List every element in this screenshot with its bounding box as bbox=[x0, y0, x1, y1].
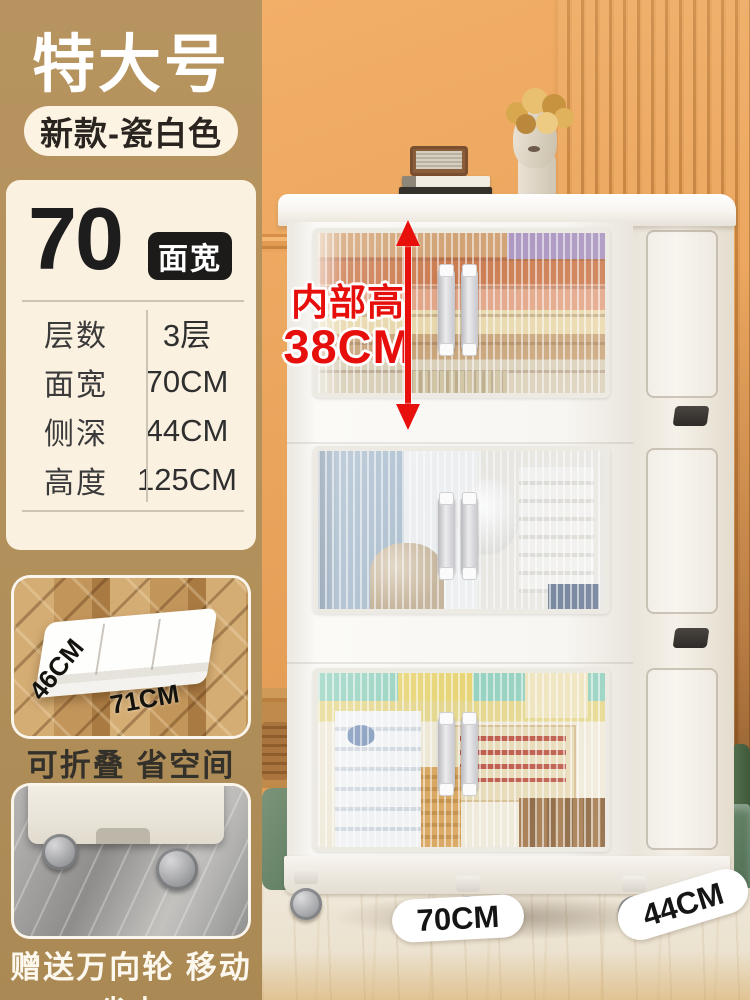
spec-panel: 70 面宽 层数 3层 面宽 70CM 侧深 44CM 高度 125C bbox=[6, 180, 256, 550]
info-sidebar: 特大号 新款-瓷白色 70 面宽 层数 3层 面宽 70CM 侧深 44CM bbox=[0, 0, 262, 1000]
spec-label: 侧深 bbox=[22, 409, 130, 453]
size-badge: 特大号 bbox=[0, 14, 262, 105]
wicker-basket bbox=[262, 722, 288, 780]
inner-height-annotation: 内部高 38CM bbox=[282, 284, 414, 370]
spec-table: 层数 3层 面宽 70CM 侧深 44CM 高度 125CM bbox=[22, 300, 244, 512]
face-vase-lips bbox=[528, 146, 540, 152]
folded-product-photo: 46CM 71CM bbox=[14, 578, 248, 736]
wheels-caption: 赠送万向轮 移动省力 bbox=[0, 942, 262, 1000]
spec-row: 面宽 70CM bbox=[22, 357, 244, 406]
table-divider bbox=[146, 310, 148, 502]
caster-wheel bbox=[288, 868, 324, 920]
inner-height-value: 38CM bbox=[282, 323, 414, 370]
folded-caption: 可折叠 省空间 bbox=[0, 740, 262, 785]
spec-row: 层数 3层 bbox=[22, 308, 244, 357]
floor-glow bbox=[262, 952, 750, 1000]
tier1-door-handles bbox=[438, 266, 478, 354]
cabinet-side-panel bbox=[630, 208, 734, 892]
spec-label: 面宽 bbox=[22, 360, 130, 404]
book-decor bbox=[402, 176, 490, 187]
caster-wheel-photo bbox=[156, 848, 198, 890]
height-arrow bbox=[405, 242, 411, 408]
wheels-detail-photo bbox=[14, 786, 248, 936]
width-big-number: 70 bbox=[28, 188, 122, 290]
variant-pill: 新款-瓷白色 bbox=[24, 106, 238, 156]
spec-label: 层数 bbox=[22, 311, 130, 355]
width-badge: 面宽 bbox=[148, 232, 232, 280]
product-poster: 内部高 38CM 70CM 44CM 特大号 新款-瓷白色 70 面宽 层数 3… bbox=[0, 0, 750, 1000]
side-handle-slot bbox=[673, 628, 710, 648]
inner-height-label: 内部高 bbox=[282, 284, 414, 321]
tier2-door-handles bbox=[438, 494, 478, 578]
spec-label: 高度 bbox=[22, 458, 130, 502]
height-arrow-top-icon bbox=[396, 220, 420, 246]
spec-row: 高度 125CM bbox=[22, 455, 244, 504]
height-arrow-bottom-icon bbox=[396, 404, 420, 430]
width-dimension-pill: 70CM bbox=[391, 894, 525, 944]
side-handle-slot bbox=[673, 406, 710, 426]
spec-row: 侧深 44CM bbox=[22, 406, 244, 455]
tier3-door-handles bbox=[438, 714, 478, 794]
dried-flowers-decor bbox=[502, 84, 576, 136]
caster-wheel-photo bbox=[42, 834, 78, 870]
radio-decor bbox=[410, 146, 468, 176]
